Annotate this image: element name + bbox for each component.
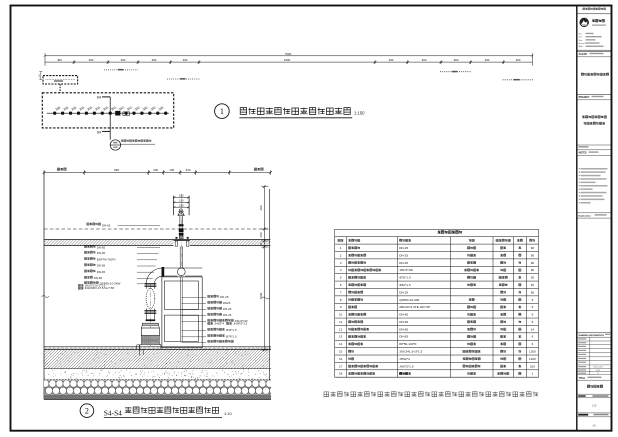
svg-text:JHS*5*1.5: JHS*5*1.5: [399, 364, 414, 368]
svg-text:1200: 1200: [529, 357, 536, 361]
svg-text:1: 1: [220, 107, 224, 116]
svg-text:150: 150: [179, 194, 184, 198]
svg-text:13: 13: [339, 335, 343, 339]
svg-text:17: 17: [339, 364, 343, 368]
svg-text:DN-65: DN-65: [399, 320, 408, 324]
svg-text:S4: S4: [97, 96, 101, 100]
svg-text:TITLE: TITLE: [579, 378, 586, 380]
svg-text:DN-25: DN-25: [220, 295, 229, 299]
svg-text:DN-25: DN-25: [399, 290, 408, 294]
svg-text:2400: 2400: [284, 58, 291, 62]
svg-text:1:10: 1:10: [224, 411, 233, 416]
svg-text:DN25: DN25: [223, 301, 231, 305]
svg-text:DN-65: DN-65: [97, 251, 106, 255]
svg-text:430: 430: [485, 58, 490, 62]
svg-text:12: 12: [339, 327, 343, 331]
svg-text:ABGOC3-4TE 18/7.5P: ABGOC3-4TE 18/7.5P: [399, 305, 430, 309]
svg-text:JHS2*4: JHS2*4: [214, 321, 224, 325]
svg-text:400: 400: [152, 58, 157, 62]
svg-text:XXX: XXX: [596, 370, 601, 372]
svg-text:Φ32*1.5: Φ32*1.5: [399, 283, 411, 287]
svg-text:400/200V-47.5.5L/7.5P: 400/200V-47.5.5L/7.5P: [85, 286, 115, 290]
svg-text:1:10: 1:10: [592, 405, 597, 408]
svg-text:135: 135: [169, 168, 174, 172]
svg-text:90: 90: [531, 268, 535, 272]
svg-text:1000: 1000: [259, 292, 263, 299]
svg-text:1200: 1200: [529, 350, 536, 354]
svg-text:Fax:: Fax:: [579, 40, 583, 42]
svg-text:400: 400: [422, 58, 427, 62]
svg-text:DN-65: DN-65: [97, 245, 106, 249]
svg-text:PROJECT: PROJECT: [579, 97, 590, 99]
svg-text:400: 400: [259, 205, 263, 210]
svg-text:DN-65: DN-65: [399, 327, 408, 331]
svg-text:DN-25: DN-25: [223, 307, 232, 311]
svg-text:14: 14: [531, 327, 535, 331]
svg-text:DN-65: DN-65: [102, 224, 111, 228]
svg-text:220: 220: [530, 364, 535, 368]
svg-text:100: 100: [259, 232, 263, 237]
svg-text:DN-65: DN-65: [97, 264, 106, 268]
svg-text:80*50-100*0: 80*50-100*0: [399, 342, 416, 346]
svg-text:150-9*1W: 150-9*1W: [399, 268, 413, 272]
svg-text:11: 11: [339, 320, 342, 324]
svg-text:90: 90: [531, 290, 535, 294]
svg-text:595: 595: [114, 168, 119, 172]
svg-text:45: 45: [531, 283, 535, 287]
svg-text:JHS2*4: JHS2*4: [399, 357, 410, 361]
svg-text:400: 400: [183, 58, 188, 62]
svg-text:30: 30: [531, 276, 535, 280]
svg-text:90: 90: [531, 261, 535, 265]
svg-text:460: 460: [454, 58, 459, 62]
svg-text:DN-65: DN-65: [399, 335, 408, 339]
svg-text:230: 230: [153, 168, 158, 172]
svg-text:60: 60: [259, 242, 263, 245]
svg-text:18: 18: [339, 372, 343, 376]
svg-text:150: 150: [39, 74, 41, 77]
svg-text:DN-25: DN-25: [223, 313, 232, 317]
svg-text:3X0.34L.5+3*1.5: 3X0.34L.5+3*1.5: [399, 350, 422, 354]
svg-text:S4-S4: S4-S4: [104, 408, 122, 417]
svg-text:15: 15: [339, 350, 343, 354]
svg-text:DN-25: DN-25: [399, 261, 408, 265]
svg-text:XXX-X-XX: XXX-X-XX: [593, 366, 603, 368]
svg-text:S4: S4: [97, 130, 101, 134]
svg-text:DN-65: DN-65: [399, 313, 408, 317]
svg-text:135: 135: [179, 199, 184, 203]
svg-text:Q6950-10-30#: Q6950-10-30#: [399, 298, 419, 302]
svg-text:1:150: 1:150: [354, 111, 365, 116]
svg-text:CLIENT: CLIENT: [579, 54, 588, 56]
svg-text:Explanation: Explanation: [578, 214, 591, 217]
svg-text:400: 400: [57, 58, 62, 62]
svg-text:230: 230: [186, 168, 191, 172]
svg-text:DRAWING INFORMATION: DRAWING INFORMATION: [579, 334, 605, 337]
svg-text:7500: 7500: [285, 52, 292, 56]
svg-text:DN-65: DN-65: [94, 276, 103, 280]
svg-text:16: 16: [339, 357, 343, 361]
svg-text:430: 430: [389, 58, 394, 62]
svg-text:DN-65: DN-65: [97, 270, 106, 274]
svg-text:Φ76*1.0: Φ76*1.0: [226, 334, 237, 338]
svg-text:NOTES: NOTES: [579, 153, 587, 155]
svg-text:DN-25: DN-25: [399, 246, 408, 250]
svg-text:2: 2: [85, 407, 89, 416]
svg-text:90: 90: [531, 253, 535, 257]
svg-text:DN-25: DN-25: [399, 253, 408, 257]
svg-text:10: 10: [339, 313, 343, 317]
svg-text:400: 400: [121, 58, 126, 62]
svg-text:Φ32*1.5: Φ32*1.5: [226, 328, 237, 332]
svg-text:14: 14: [339, 342, 343, 346]
svg-text:Add:: Add:: [579, 45, 584, 48]
svg-text:Tel:: Tel:: [579, 37, 583, 39]
svg-text:Φ76*1.0: Φ76*1.0: [399, 276, 411, 280]
svg-text:150: 150: [179, 204, 184, 208]
svg-text:400: 400: [89, 58, 94, 62]
svg-text:JHSP3*1.5: JHSP3*1.5: [233, 321, 248, 325]
svg-text:400: 400: [516, 58, 521, 62]
svg-text:E-mail:: E-mail:: [579, 43, 586, 45]
svg-text:BSP76+760*N: BSP76+760*N: [97, 257, 116, 261]
svg-text:P.C:: P.C:: [579, 33, 583, 35]
svg-text:90: 90: [531, 246, 535, 250]
